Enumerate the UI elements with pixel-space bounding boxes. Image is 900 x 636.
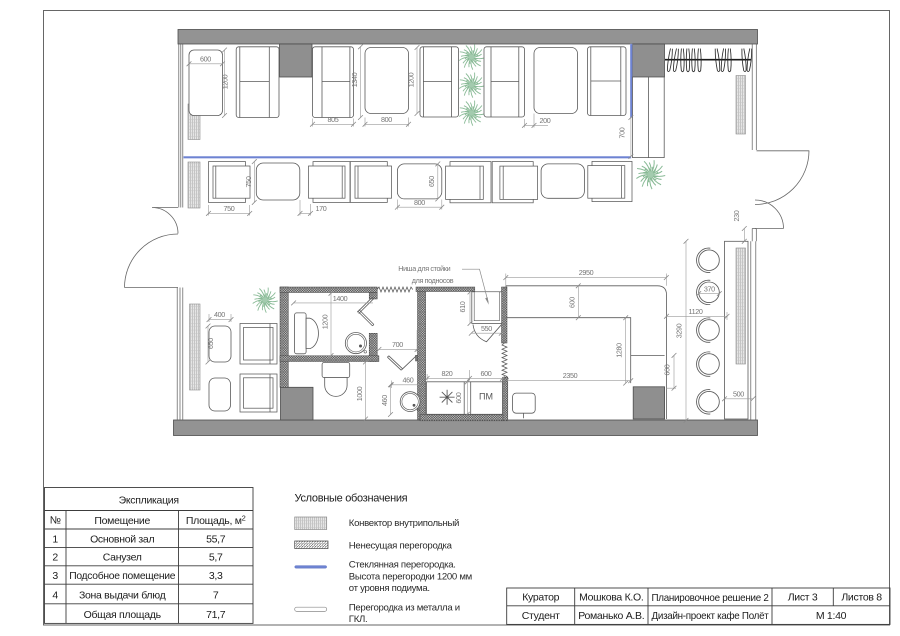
- svg-text:Общая площадь: Общая площадь: [84, 609, 162, 621]
- svg-text:Стеклянная перегородка.: Стеклянная перегородка.: [349, 560, 456, 571]
- svg-text:610: 610: [458, 301, 467, 312]
- svg-text:1000: 1000: [355, 386, 364, 401]
- svg-text:7: 7: [213, 589, 219, 601]
- svg-text:3: 3: [52, 570, 58, 582]
- svg-text:Романько А.В.: Романько А.В.: [578, 610, 644, 622]
- svg-text:2950: 2950: [579, 268, 594, 277]
- svg-text:1200: 1200: [221, 74, 230, 89]
- svg-text:750: 750: [224, 204, 235, 213]
- svg-text:ГКЛ.: ГКЛ.: [349, 614, 368, 625]
- svg-text:1200: 1200: [320, 314, 329, 329]
- svg-text:550: 550: [481, 324, 492, 333]
- svg-text:1280: 1280: [615, 343, 624, 358]
- svg-text:600: 600: [481, 369, 492, 378]
- svg-text:650: 650: [206, 338, 215, 349]
- svg-text:700: 700: [618, 127, 627, 138]
- svg-text:170: 170: [316, 204, 327, 213]
- svg-text:600: 600: [568, 297, 577, 308]
- svg-text:1: 1: [52, 533, 58, 545]
- svg-text:55,7: 55,7: [206, 533, 226, 545]
- svg-text:3290: 3290: [675, 323, 684, 338]
- svg-text:для подносов: для подносов: [412, 276, 454, 285]
- svg-text:Основной зал: Основной зал: [90, 533, 154, 545]
- svg-text:400: 400: [214, 310, 225, 319]
- svg-text:460: 460: [403, 375, 414, 384]
- svg-text:Куратор: Куратор: [522, 592, 559, 604]
- svg-text:3,3: 3,3: [209, 570, 223, 582]
- svg-text:4: 4: [52, 589, 58, 601]
- svg-text:805: 805: [328, 115, 339, 124]
- svg-text:от уровня подиума.: от уровня подиума.: [349, 583, 430, 594]
- svg-text:Лист 3: Лист 3: [788, 592, 818, 604]
- svg-text:820: 820: [442, 369, 453, 378]
- svg-text:800: 800: [414, 198, 425, 207]
- svg-text:750: 750: [244, 176, 253, 187]
- svg-text:71,7: 71,7: [206, 609, 226, 621]
- svg-text:Мошкова К.О.: Мошкова К.О.: [579, 592, 643, 604]
- svg-text:Условные обозначения: Условные обозначения: [295, 493, 408, 505]
- svg-text:1120: 1120: [688, 307, 702, 316]
- svg-text:Экспликация: Экспликация: [119, 495, 179, 507]
- svg-text:Планировочное решение 2: Планировочное решение 2: [652, 592, 769, 604]
- svg-text:ПМ: ПМ: [479, 392, 493, 402]
- svg-text:460: 460: [380, 395, 389, 406]
- svg-text:230: 230: [732, 210, 741, 221]
- svg-text:Ненесущая перегородка: Ненесущая перегородка: [349, 541, 453, 552]
- svg-text:2350: 2350: [563, 371, 578, 380]
- svg-text:Помещение: Помещение: [94, 515, 150, 527]
- svg-text:500: 500: [733, 389, 744, 398]
- svg-text:600: 600: [200, 55, 211, 64]
- svg-text:700: 700: [392, 340, 403, 349]
- svg-text:Зона выдачи блюд: Зона выдачи блюд: [79, 589, 166, 601]
- svg-text:М 1:40: М 1:40: [816, 610, 847, 622]
- svg-text:600: 600: [662, 364, 671, 375]
- svg-text:Студент: Студент: [522, 610, 560, 622]
- svg-text:650: 650: [427, 176, 436, 187]
- svg-text:600: 600: [454, 392, 463, 403]
- svg-text:1200: 1200: [407, 72, 416, 87]
- svg-text:Дизайн-проект кафе Полёт: Дизайн-проект кафе Полёт: [652, 610, 769, 622]
- svg-text:Санузел: Санузел: [103, 552, 142, 564]
- svg-text:1340: 1340: [350, 72, 359, 87]
- svg-text:Конвектор внутрипольный: Конвектор внутрипольный: [349, 518, 459, 529]
- svg-text:Листов 8: Листов 8: [841, 592, 882, 604]
- svg-text:800: 800: [381, 115, 392, 124]
- svg-text:Площадь, м2: Площадь, м2: [186, 513, 246, 527]
- svg-text:№: №: [50, 515, 61, 527]
- svg-text:200: 200: [540, 116, 551, 125]
- svg-text:1400: 1400: [333, 294, 348, 303]
- svg-text:Высота перегородки 1200 мм: Высота перегородки 1200 мм: [349, 571, 472, 582]
- svg-text:370: 370: [704, 284, 715, 293]
- svg-text:5,7: 5,7: [209, 552, 223, 564]
- svg-text:Подсобное помещение: Подсобное помещение: [69, 570, 175, 582]
- svg-text:2: 2: [52, 552, 58, 564]
- svg-text:Перегородка из металла и: Перегородка из металла и: [349, 602, 460, 613]
- svg-text:Ниша для стойки: Ниша для стойки: [398, 264, 450, 273]
